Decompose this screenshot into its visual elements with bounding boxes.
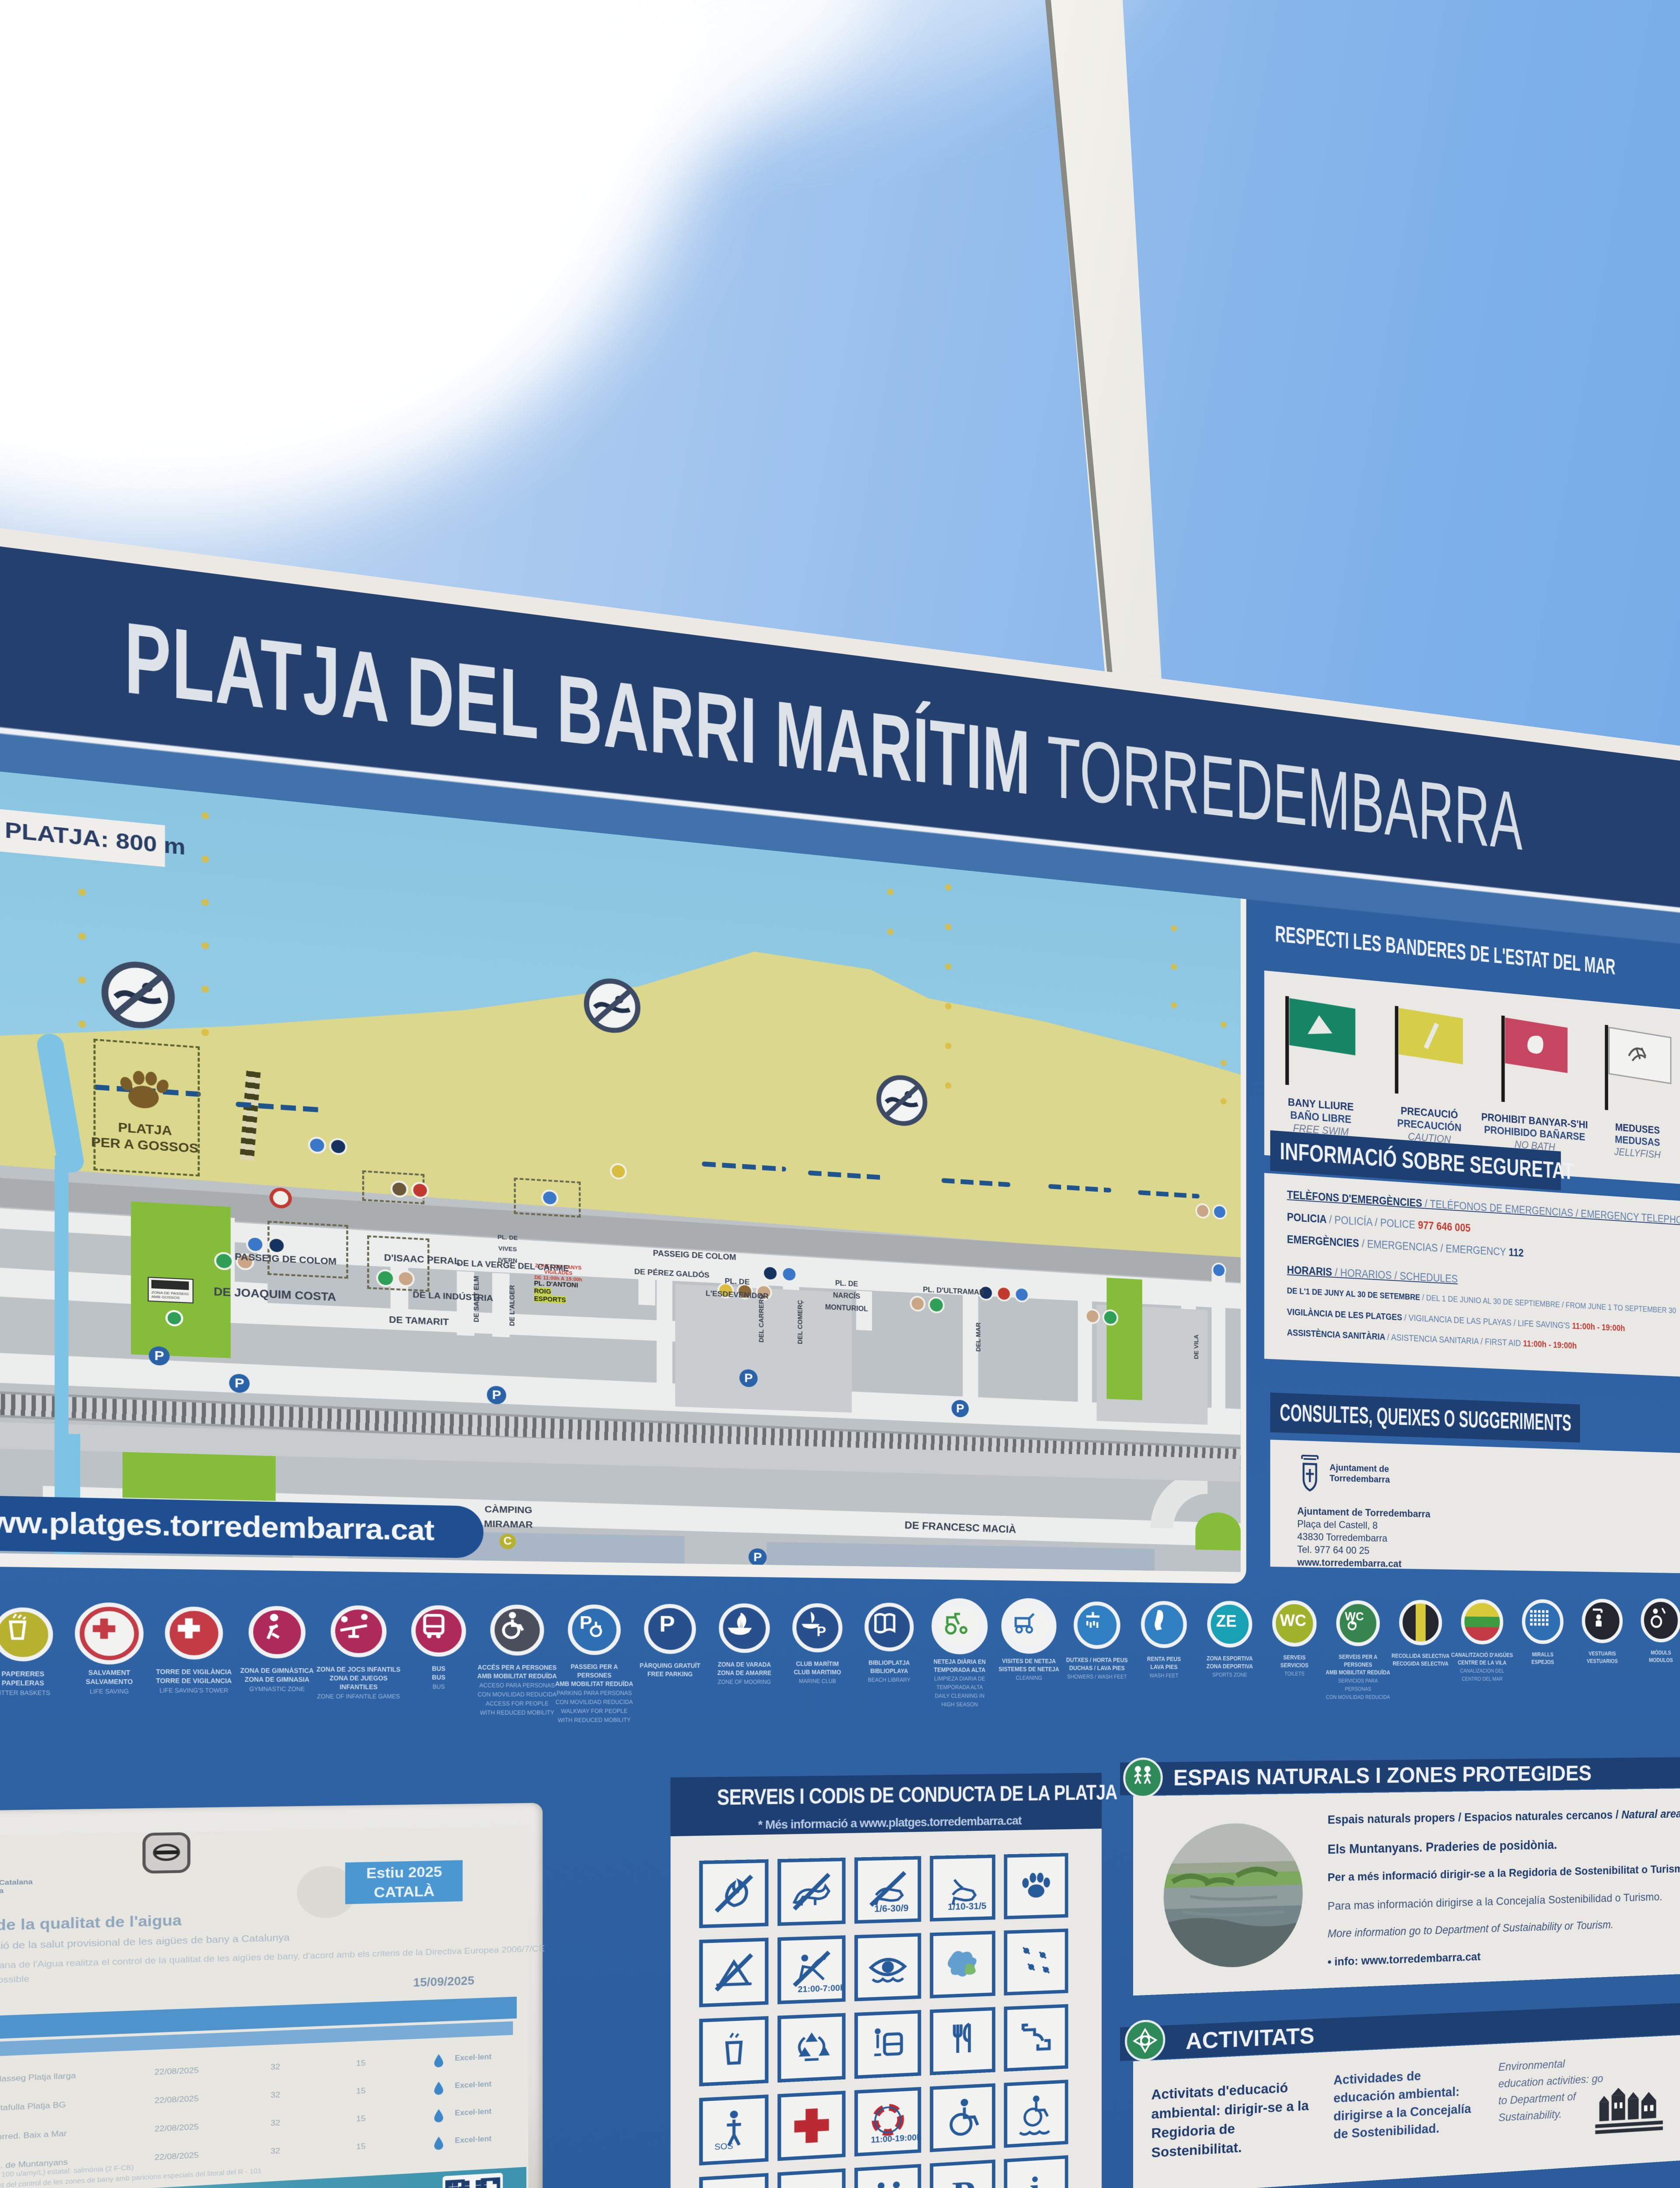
svg-text:21:00-7:00h: 21:00-7:00h bbox=[798, 1983, 846, 1994]
svg-text:P: P bbox=[659, 1611, 675, 1637]
svg-text:WC: WC bbox=[1280, 1611, 1306, 1630]
svg-text:i: i bbox=[1029, 2169, 1040, 2188]
svg-text:1/6-30/9: 1/6-30/9 bbox=[874, 1903, 908, 1914]
svg-text:WC: WC bbox=[1345, 1609, 1364, 1623]
svg-text:1/10-31/5: 1/10-31/5 bbox=[948, 1901, 986, 1912]
svg-text:P: P bbox=[952, 2173, 976, 2188]
svg-text:P: P bbox=[816, 1624, 826, 1639]
svg-text:ZE: ZE bbox=[1216, 1612, 1237, 1630]
svg-text:SOS: SOS bbox=[714, 2141, 733, 2151]
